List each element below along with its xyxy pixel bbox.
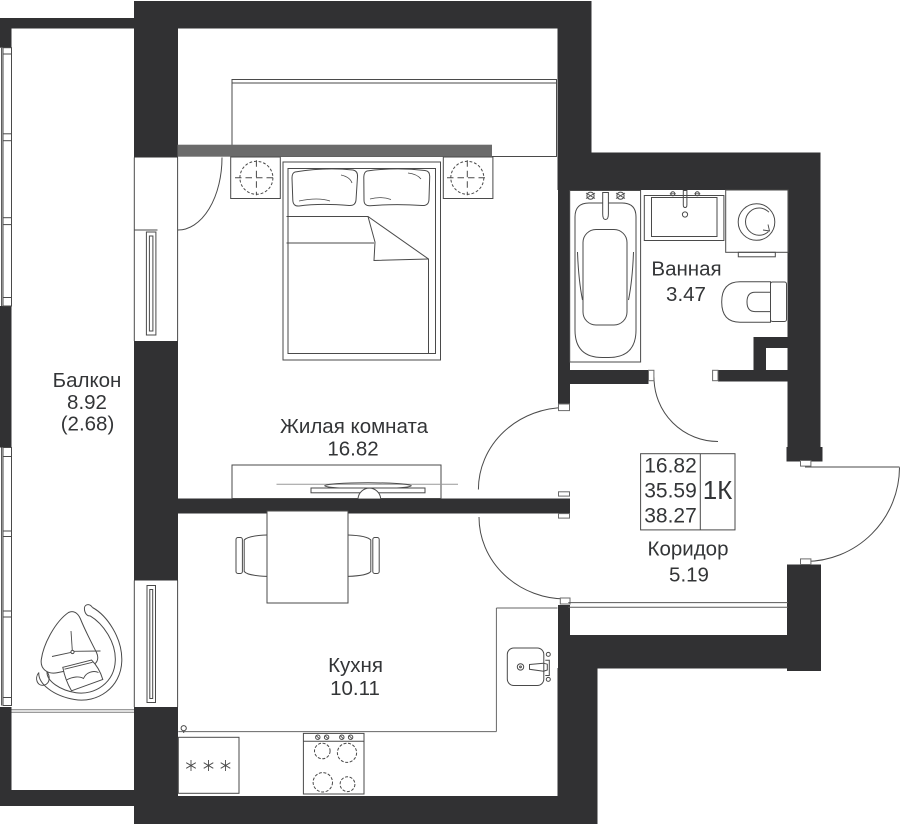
svg-text:Балкон: Балкон: [53, 369, 122, 392]
svg-text:Ванная: Ванная: [651, 258, 721, 281]
svg-text:Коридор: Коридор: [648, 538, 729, 561]
svg-text:5.19: 5.19: [669, 564, 709, 587]
svg-text:35.59: 35.59: [644, 480, 697, 503]
svg-text:3.47: 3.47: [666, 283, 706, 306]
svg-text:Жилая комната: Жилая комната: [280, 415, 429, 438]
svg-text:8.92: 8.92: [67, 391, 107, 414]
svg-text:16.82: 16.82: [327, 438, 378, 461]
svg-text:38.27: 38.27: [644, 504, 697, 527]
svg-text:1К: 1К: [703, 475, 733, 505]
svg-text:(2.68): (2.68): [61, 413, 115, 436]
svg-text:Кухня: Кухня: [328, 654, 383, 677]
svg-text:10.11: 10.11: [330, 677, 380, 700]
svg-text:16.82: 16.82: [644, 455, 697, 478]
